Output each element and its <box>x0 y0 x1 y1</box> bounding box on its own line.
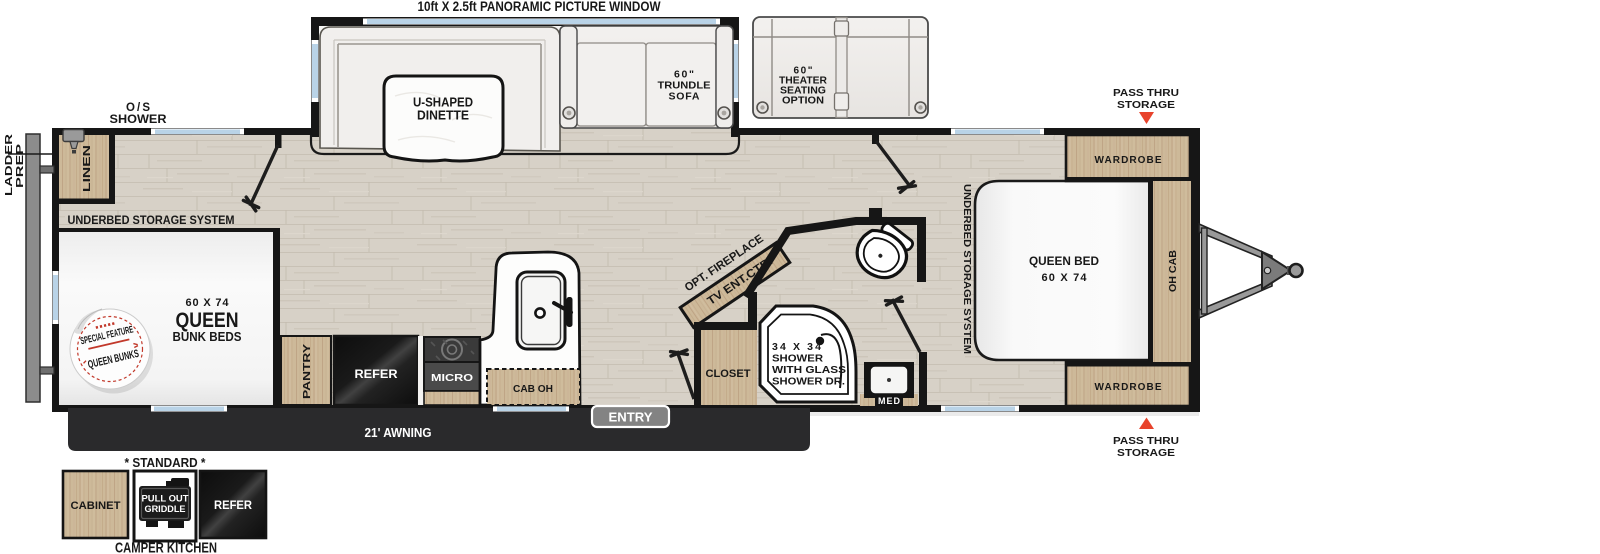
svg-text:10ft X 2.5ft PANORAMIC PICTURE: 10ft X 2.5ft PANORAMIC PICTURE WINDOW <box>418 0 661 14</box>
svg-text:CABINET: CABINET <box>71 500 121 512</box>
svg-text:PANTRY: PANTRY <box>302 344 313 399</box>
svg-text:WITH GLASS: WITH GLASS <box>772 364 846 376</box>
svg-text:REFER: REFER <box>214 498 252 512</box>
svg-text:SHOWER: SHOWER <box>772 353 823 365</box>
svg-text:WARDROBE: WARDROBE <box>1095 155 1162 166</box>
svg-text:UNDERBED STORAGE SYSTEM: UNDERBED STORAGE SYSTEM <box>961 184 973 354</box>
svg-text:PREP: PREP <box>15 143 26 188</box>
svg-text:PASS THRU: PASS THRU <box>1113 435 1179 447</box>
svg-text:DINETTE: DINETTE <box>417 108 469 123</box>
svg-text:MED: MED <box>878 396 901 406</box>
svg-text:SHOWER: SHOWER <box>110 114 168 126</box>
svg-text:WARDROBE: WARDROBE <box>1095 382 1162 393</box>
svg-text:60 X 74: 60 X 74 <box>1042 272 1088 284</box>
svg-text:REFER: REFER <box>355 367 398 381</box>
svg-text:PASS THRU: PASS THRU <box>1113 87 1179 99</box>
svg-text:STORAGE: STORAGE <box>1117 447 1175 459</box>
svg-text:STORAGE: STORAGE <box>1117 99 1175 111</box>
svg-text:LINEN: LINEN <box>81 145 93 192</box>
svg-text:UNDERBED STORAGE SYSTEM: UNDERBED STORAGE SYSTEM <box>68 215 235 227</box>
svg-text:CAMPER KITCHEN: CAMPER KITCHEN <box>115 540 217 554</box>
svg-text:PULL OUT: PULL OUT <box>142 494 189 505</box>
svg-text:CLOSET: CLOSET <box>706 368 751 380</box>
svg-text:21' AWNING: 21' AWNING <box>365 425 432 440</box>
svg-text:OPTION: OPTION <box>782 96 824 107</box>
svg-text:OH CAB: OH CAB <box>1167 250 1179 292</box>
svg-text:SHOWER DR.: SHOWER DR. <box>772 376 845 388</box>
svg-text:LADDER: LADDER <box>4 133 15 196</box>
svg-text:* STANDARD *: * STANDARD * <box>125 455 207 470</box>
svg-text:CAB OH: CAB OH <box>513 383 553 395</box>
svg-text:ENTRY: ENTRY <box>609 411 654 425</box>
svg-text:O/S: O/S <box>126 102 150 114</box>
svg-text:MICRO: MICRO <box>431 372 473 384</box>
svg-text:GRIDDLE: GRIDDLE <box>145 504 186 515</box>
svg-text:SOFA: SOFA <box>669 91 700 103</box>
svg-text:60 X 74: 60 X 74 <box>186 297 230 309</box>
svg-text:QUEEN BED: QUEEN BED <box>1029 254 1099 268</box>
svg-text:BUNK BEDS: BUNK BEDS <box>173 329 242 344</box>
